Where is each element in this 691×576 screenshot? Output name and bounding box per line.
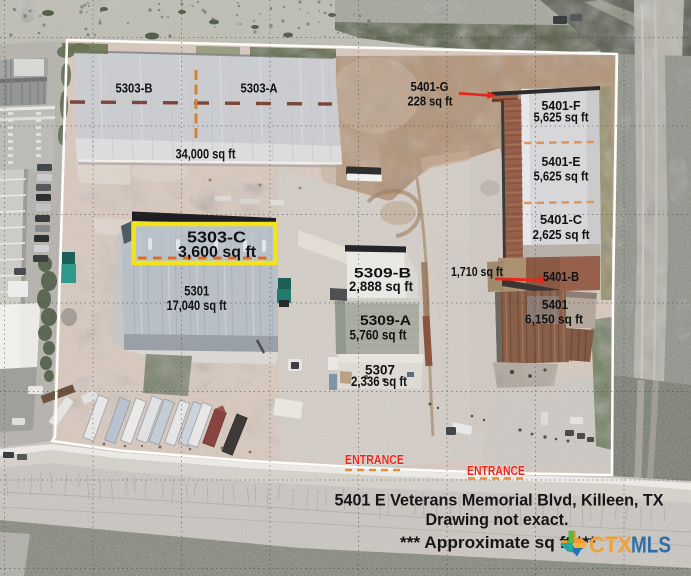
svg-text:CTX: CTX	[589, 532, 632, 558]
svg-text:5401-G: 5401-G	[411, 80, 449, 94]
svg-text:ENTRANCE: ENTRANCE	[345, 452, 404, 467]
svg-text:MLS: MLS	[631, 532, 671, 558]
svg-text:5,625 sq ft: 5,625 sq ft	[534, 111, 590, 125]
svg-text:6,150 sq ft: 6,150 sq ft	[525, 313, 584, 327]
svg-text:228 sq ft: 228 sq ft	[408, 95, 454, 109]
svg-text:5401 E Veterans Memorial Blvd,: 5401 E Veterans Memorial Blvd, Killeen, …	[335, 491, 665, 510]
svg-text:3,600 sq ft: 3,600 sq ft	[178, 244, 256, 261]
svg-text:5303-B: 5303-B	[116, 81, 153, 96]
svg-text:2,888 sq ft: 2,888 sq ft	[349, 278, 413, 294]
svg-text:Drawing not exact.: Drawing not exact.	[426, 510, 569, 529]
svg-text:34,000 sq ft: 34,000 sq ft	[176, 147, 236, 162]
svg-text:5401-B: 5401-B	[543, 270, 579, 284]
svg-text:ENTRANCE: ENTRANCE	[467, 463, 525, 478]
svg-text:2,625 sq ft: 2,625 sq ft	[533, 228, 591, 242]
svg-text:5401-C: 5401-C	[540, 213, 582, 227]
svg-text:2,336 sq ft: 2,336 sq ft	[351, 373, 407, 389]
svg-text:5401: 5401	[542, 298, 568, 312]
svg-text:5301: 5301	[184, 284, 209, 299]
svg-text:17,040 sq ft: 17,040 sq ft	[167, 298, 227, 313]
svg-text:5,625 sq ft: 5,625 sq ft	[534, 170, 590, 184]
svg-text:5303-A: 5303-A	[241, 81, 279, 96]
svg-text:5401-E: 5401-E	[542, 155, 581, 169]
svg-text:5,760 sq ft: 5,760 sq ft	[350, 327, 407, 343]
svg-text:1,710 sq ft: 1,710 sq ft	[451, 265, 504, 279]
